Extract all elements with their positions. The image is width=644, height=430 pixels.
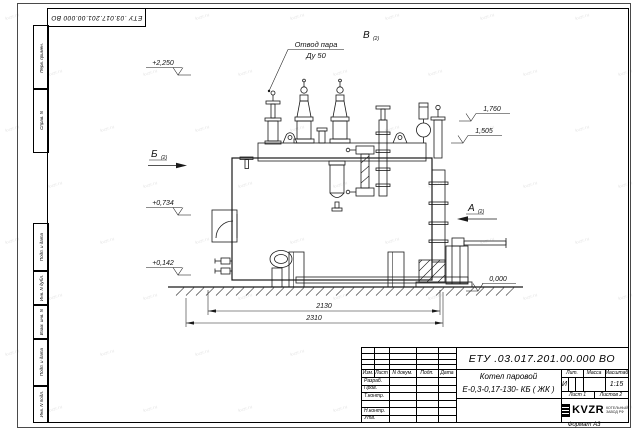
view-letter: В	[363, 30, 370, 41]
scale-value: 1:15	[605, 377, 628, 391]
boiler-body	[232, 133, 432, 280]
sig-row-tkontr: Т.контр.	[362, 392, 391, 400]
col-header-ndokum: N докум.	[389, 369, 416, 377]
tb-line	[438, 348, 439, 422]
rear-top-fitting	[431, 105, 445, 158]
margin-label: Инв. N подл.	[39, 391, 44, 417]
view-letter: А	[467, 203, 475, 214]
margin-cell-perv-primen: Перв. примен.	[33, 25, 49, 90]
steam-outlet-text: Отвод пара	[295, 40, 338, 49]
scale-header: Масштаб	[605, 369, 628, 377]
dimension-2130: 2130	[208, 290, 440, 315]
sig-row-nkontr: Н.контр.	[362, 407, 391, 415]
water-column-pipe	[376, 106, 390, 196]
margin-cell-inv-dubl: Инв. N дубл.	[33, 270, 49, 306]
elevation-label: 1,760	[483, 106, 501, 113]
margin-label: Перв. примен.	[39, 43, 44, 73]
elevation-mark-1505: 1,505	[451, 128, 502, 143]
steam-outlet-label: Отвод пара Ду 50	[268, 40, 344, 92]
col-header-podp: Подп.	[416, 369, 438, 377]
view-marker-a: А (2)	[457, 203, 497, 222]
col-header-data: Дата	[438, 369, 456, 377]
product-name-line1: Котел паровой	[456, 369, 561, 383]
margin-label: Справ. N	[39, 111, 44, 130]
dim-2130-label: 2130	[315, 303, 332, 310]
left-top-tap	[240, 157, 253, 169]
margin-label: Подп. и дата	[39, 233, 44, 261]
top-stamp-number: ЕТУ .03.017.201.00.000 ВО	[51, 14, 142, 21]
kvzr-logo-subtitle: КОТЕЛЬНЫЙ ЗАВОД РФ	[606, 406, 628, 415]
elevation-mark-0142: +0,142	[146, 260, 191, 275]
lit-header: Лит.	[561, 369, 583, 377]
tb-line	[568, 377, 569, 391]
sig-row-razrab: Разраб.	[362, 377, 391, 385]
elevation-label: +0,734	[152, 200, 174, 207]
sheets-total: Листов 2	[594, 391, 628, 398]
view-index: (2)	[373, 36, 379, 42]
elevation-label: 0,000	[489, 276, 507, 283]
kvzr-logo-text: KVZR	[572, 404, 604, 416]
tb-line	[575, 377, 576, 391]
sig-row-prov: Пров.	[362, 385, 391, 393]
separator-vessel	[329, 161, 345, 211]
doc-number: ЕТУ .03.017.201.00.000 ВО	[456, 348, 628, 369]
elevation-mark-2250: +2,250	[146, 60, 191, 75]
water-level-gauge	[346, 146, 374, 196]
lit-value: И	[561, 377, 568, 391]
elevation-mark-1760: 1,760	[459, 106, 510, 121]
col-header-list: Лист	[374, 369, 389, 377]
safety-valve-left	[294, 79, 314, 143]
margin-cell-podp-data-2: Подп. и дата	[33, 338, 49, 387]
col-header-izm: Изм.	[362, 369, 374, 377]
sheet-number: Лист 1	[561, 391, 594, 398]
tb-line	[416, 348, 417, 422]
steam-outlet-valve	[265, 91, 281, 144]
format-label: Формат А3	[540, 420, 628, 429]
elevation-label: +0,142	[152, 260, 174, 267]
top-inverted-stamp: ЕТУ .03.017.201.00.000 ВО	[47, 8, 146, 27]
tb-line	[362, 359, 456, 360]
company-logo-cell: KVZR КОТЕЛЬНЫЙ ЗАВОД РФ	[561, 398, 628, 422]
elevation-label: +2,250	[152, 60, 174, 67]
blueprint-page: { "page": { "format_label": "Формат А3" …	[0, 0, 644, 430]
steam-outlet-dn: Ду 50	[305, 51, 326, 60]
safety-valve-right	[330, 79, 350, 143]
dim-2310-label: 2310	[305, 315, 322, 322]
tb-line	[362, 400, 456, 401]
dimension-2310: 2310	[186, 292, 443, 327]
elevation-mark-0734: +0,734	[146, 200, 191, 215]
margin-cell-vzam-inv: Взам. инв. N	[33, 304, 49, 340]
view-marker-b: Б (2)	[148, 149, 187, 168]
title-block: ЕТУ .03.017.201.00.000 ВО Котел паровой …	[361, 347, 629, 423]
margin-label: Взам. инв. N	[39, 309, 44, 335]
mass-header: Масса	[583, 369, 605, 377]
rear-pipe-column	[429, 170, 448, 262]
view-letter: Б	[151, 149, 158, 160]
header-fitting	[317, 128, 327, 143]
margin-cell-sprav-n: Справ. N	[33, 88, 49, 153]
margin-cell-inv-podl: Инв. N подл.	[33, 385, 49, 423]
margin-label: Подп. и дата	[39, 348, 44, 376]
logo-sub-line2: ЗАВОД РФ	[606, 410, 628, 415]
elevation-label: 1,505	[475, 128, 493, 135]
kvzr-logo-icon	[561, 404, 570, 417]
left-drain-valves	[215, 258, 232, 274]
margin-label: Инв. N дубл.	[39, 275, 44, 301]
pressure-gauge	[417, 103, 431, 143]
tb-line	[362, 364, 456, 365]
elevation-mark-zero: 0,000	[466, 276, 516, 291]
margin-cell-podp-data-1: Подп. и дата	[33, 223, 49, 272]
product-name-line2: Е-0,3-0,17-130- КБ ( ЖК )	[456, 382, 561, 397]
view-marker-v: В (2)	[363, 30, 379, 42]
sig-row-utv: Утв.	[362, 415, 391, 423]
tb-line	[362, 353, 456, 354]
front-door	[212, 210, 237, 242]
